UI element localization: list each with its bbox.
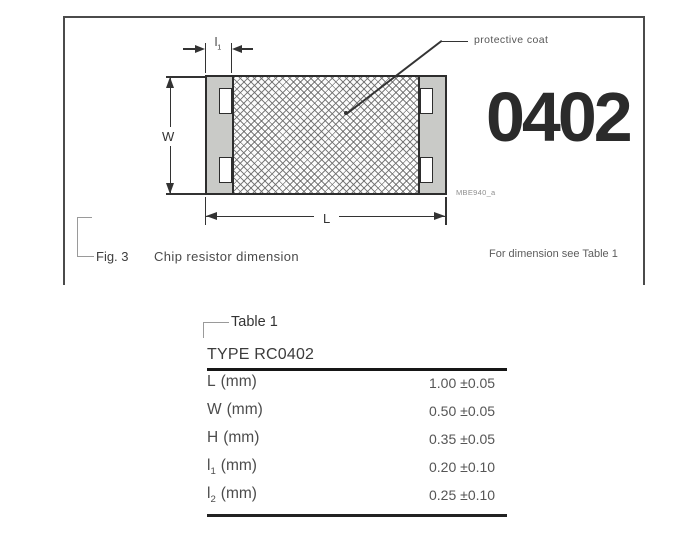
drawing-reference: MBE940_a xyxy=(456,188,496,197)
row-value: 1.00 ±0.05 xyxy=(429,375,495,391)
figure-number: Fig. 3 xyxy=(96,249,129,264)
arrow-left-icon xyxy=(206,212,217,220)
terminal-notch xyxy=(219,157,232,183)
row-label-unit: (mm) xyxy=(221,485,257,502)
row-value: 0.25 ±0.10 xyxy=(429,487,495,503)
row-label-unit: (mm) xyxy=(227,401,263,418)
row-label-unit: (mm) xyxy=(221,373,257,390)
row-label: L(mm) xyxy=(207,373,257,390)
row-label: H(mm) xyxy=(207,429,259,446)
arrow-right-icon xyxy=(434,212,445,220)
table-row: l1(mm) 0.20 ±0.10 xyxy=(207,457,507,485)
terminal-notch xyxy=(420,157,433,183)
l-extension-right xyxy=(445,197,447,225)
row-value-number: 0.35 xyxy=(429,431,456,447)
arrow-up-icon xyxy=(166,77,174,88)
row-label-unit: (mm) xyxy=(223,429,259,446)
row-value: 0.20 ±0.10 xyxy=(429,459,495,475)
row-value-number: 0.50 xyxy=(429,403,456,419)
row-value: 0.50 ±0.05 xyxy=(429,403,495,419)
size-code: 0402 xyxy=(486,89,630,146)
terminal-notch xyxy=(420,88,433,114)
row-value-tolerance: ±0.05 xyxy=(460,375,495,391)
table-title: Table 1 xyxy=(231,314,278,330)
table-row: W(mm) 0.50 ±0.05 xyxy=(207,401,507,429)
row-label-subscript: 2 xyxy=(210,494,215,505)
table-bracket-horizontal xyxy=(203,322,229,323)
row-value-tolerance: ±0.05 xyxy=(460,403,495,419)
row-value-tolerance: ±0.10 xyxy=(460,487,495,503)
arrow-left-icon xyxy=(232,45,242,53)
table-rule-top xyxy=(207,368,507,371)
l-extension-left xyxy=(205,197,207,225)
row-value-number: 0.20 xyxy=(429,459,456,475)
l1-label-subscript: 1 xyxy=(217,43,221,51)
table-rows: L(mm) 1.00 ±0.05 W(mm) 0.50 ±0.05 H(mm) … xyxy=(207,373,507,513)
l1-dimension-label: l1 xyxy=(205,38,231,50)
fig-bracket-vertical xyxy=(77,217,78,257)
row-label-base: W xyxy=(207,401,222,418)
row-label-base: H xyxy=(207,429,218,446)
table-row: H(mm) 0.35 ±0.05 xyxy=(207,429,507,457)
table-row: L(mm) 1.00 ±0.05 xyxy=(207,373,507,401)
row-label-subscript: 1 xyxy=(210,466,215,477)
table-type-header: TYPE RC0402 xyxy=(207,346,314,364)
row-value-tolerance: ±0.10 xyxy=(460,459,495,475)
table-rule-bottom xyxy=(207,514,507,517)
row-label: W(mm) xyxy=(207,401,263,418)
row-value-tolerance: ±0.05 xyxy=(460,431,495,447)
protective-coat-label: protective coat xyxy=(474,34,548,46)
terminal-notch xyxy=(219,88,232,114)
arrow-right-icon xyxy=(195,45,205,53)
row-label: l2(mm) xyxy=(207,485,257,502)
row-label-unit: (mm) xyxy=(221,457,257,474)
l-dimension-label: L xyxy=(314,209,339,228)
row-label-base: L xyxy=(207,373,216,390)
arrow-down-icon xyxy=(166,183,174,194)
protective-coat-hatch xyxy=(232,77,420,193)
fig-bracket-tick-top xyxy=(77,217,92,218)
row-value: 0.35 ±0.05 xyxy=(429,431,495,447)
row-value-number: 0.25 xyxy=(429,487,456,503)
leader-horizontal xyxy=(440,41,468,43)
row-value-number: 1.00 xyxy=(429,375,456,391)
resistor-body xyxy=(205,75,447,195)
row-label: l1(mm) xyxy=(207,457,257,474)
table-bracket-vertical xyxy=(203,322,204,338)
table-row: l2(mm) 0.25 ±0.10 xyxy=(207,485,507,513)
datasheet-page: W L l1 protective coat 0402 MBE940_a Fig… xyxy=(0,0,700,536)
w-dimension-label: W xyxy=(158,127,178,146)
figure-caption: Chip resistor dimension xyxy=(154,249,299,264)
figure-note: For dimension see Table 1 xyxy=(489,248,618,260)
fig-bracket-tick-bottom xyxy=(77,256,94,257)
